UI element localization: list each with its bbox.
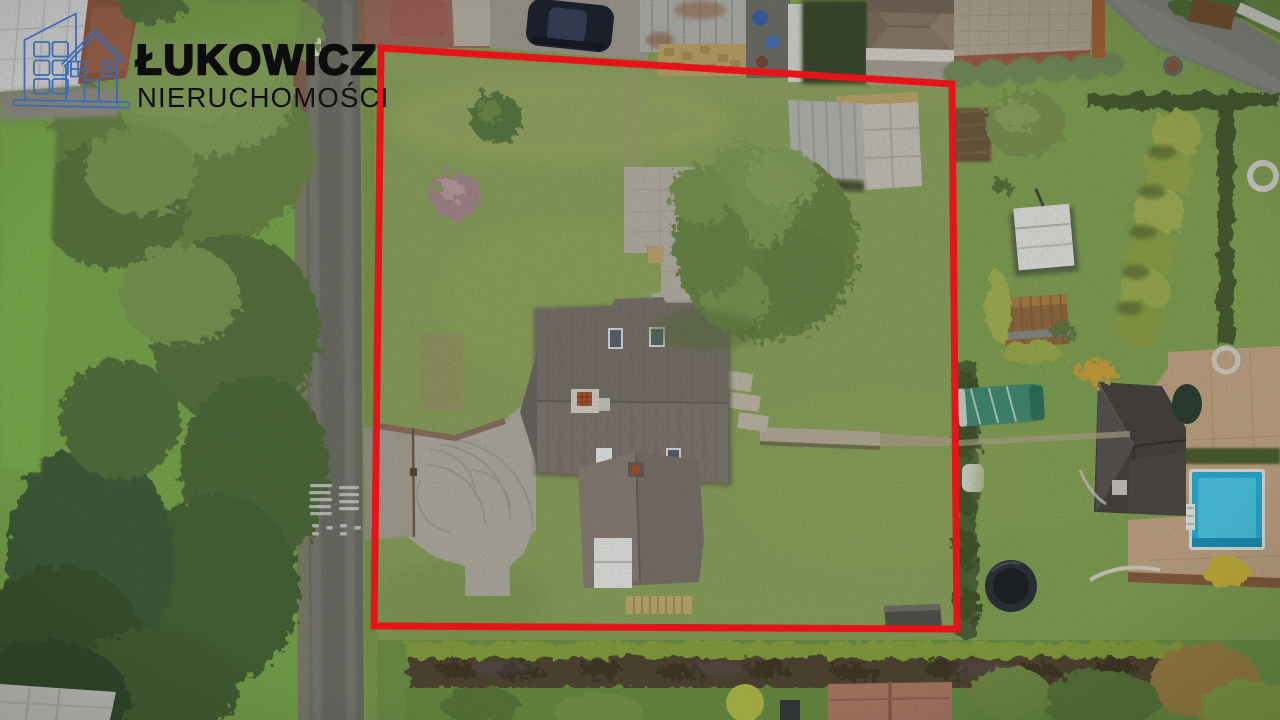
svg-text:ŁUKOWICZ: ŁUKOWICZ [136, 36, 378, 83]
svg-text:NIERUCHOMOŚCI: NIERUCHOMOŚCI [137, 81, 389, 113]
